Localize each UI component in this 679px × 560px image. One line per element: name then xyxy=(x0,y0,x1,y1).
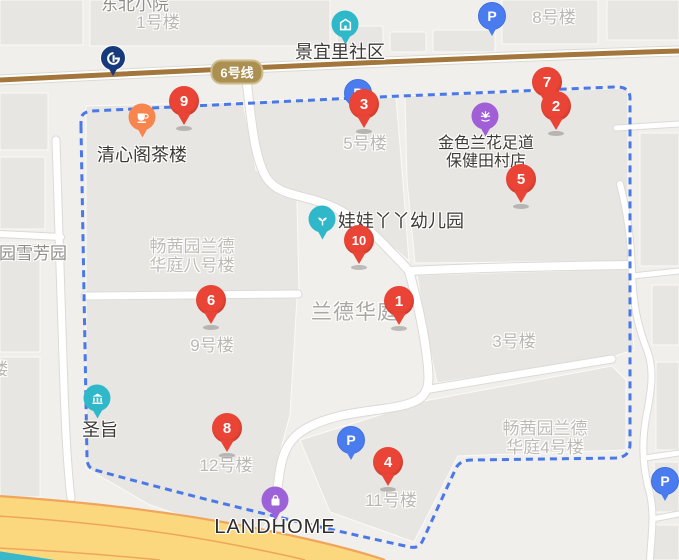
foot-massage-icon[interactable] xyxy=(472,103,499,130)
marker-shadow xyxy=(391,326,407,331)
map-marker-3[interactable]: 3 xyxy=(349,89,379,119)
marker-shadow xyxy=(351,265,367,270)
marker-shadow xyxy=(219,453,235,458)
parking-pin-east[interactable]: P xyxy=(651,467,679,495)
building-label-3: 3号楼 xyxy=(492,327,535,352)
map-marker-4[interactable]: 4 xyxy=(373,447,403,477)
parking-letter: P xyxy=(487,8,496,24)
map-canvas[interactable] xyxy=(0,0,679,560)
bank-glyph xyxy=(90,391,104,405)
teahouse-icon[interactable] xyxy=(129,104,156,131)
poi-label-bank[interactable]: 圣旨 xyxy=(82,416,118,442)
marker-shadow xyxy=(356,129,372,134)
marker-number: 3 xyxy=(360,96,368,113)
map-marker-6[interactable]: 6 xyxy=(196,285,226,315)
map-marker-1[interactable]: 1 xyxy=(384,286,414,316)
subway-logo-icon xyxy=(107,52,120,65)
area-label-yuanxuefangyuan: 园雪芳园 xyxy=(0,239,67,264)
marker-number: 6 xyxy=(207,292,215,309)
poi-label-line: 金色兰花足道 xyxy=(438,135,534,153)
map-marker-2[interactable]: 2 xyxy=(541,91,571,121)
marker-shadow xyxy=(380,487,396,492)
subway-station-icon[interactable] xyxy=(100,45,126,71)
poi-label-teahouse[interactable]: 清心阁茶楼 xyxy=(97,141,187,167)
parking-letter: P xyxy=(346,432,355,448)
area-label-line: 华庭八号楼 xyxy=(150,256,235,275)
marker-number: 1 xyxy=(395,293,403,310)
area-label-line: 畅茜园兰德 xyxy=(503,419,588,438)
parking-pin-south[interactable]: P xyxy=(337,426,365,454)
mall-icon[interactable] xyxy=(262,487,289,514)
marker-number: 9 xyxy=(180,93,188,110)
community-icon[interactable] xyxy=(332,11,359,38)
marker-number: 2 xyxy=(552,98,560,115)
marker-number: 5 xyxy=(517,171,525,188)
marker-number: 4 xyxy=(384,454,392,471)
map-marker-9[interactable]: 9 xyxy=(169,86,199,116)
building-label-9: 9号楼 xyxy=(190,331,233,356)
marker-shadow xyxy=(176,126,192,131)
area-label-line: 畅茜园兰德 xyxy=(150,237,235,256)
map-marker-8[interactable]: 8 xyxy=(212,413,242,443)
kindergarten-icon[interactable] xyxy=(309,206,336,233)
marker-number: 8 xyxy=(223,420,231,437)
marker-shadow xyxy=(513,204,529,209)
sprout-glyph xyxy=(315,212,329,226)
building-label-8: 8号楼 xyxy=(532,3,575,28)
marker-number: 10 xyxy=(352,233,366,248)
marker-shadow xyxy=(203,325,219,330)
parking-letter: P xyxy=(660,473,669,489)
map-marker-10[interactable]: 10 xyxy=(344,225,374,255)
area-label-changxiyuan-8: 畅茜园兰德 华庭八号楼 xyxy=(150,237,235,275)
metro-line-badge: 6号线 xyxy=(210,60,263,85)
area-label-line: 华庭4号楼 xyxy=(503,438,588,457)
area-label-changxiyuan-4: 畅茜园兰德 华庭4号楼 xyxy=(503,419,588,457)
map-marker-5[interactable]: 5 xyxy=(506,164,536,194)
building-label-1: 1号楼 xyxy=(136,8,179,33)
marker-shadow xyxy=(548,131,564,136)
area-label-partial-lou: 楼 xyxy=(0,355,8,380)
marker-number: 7 xyxy=(543,74,551,91)
building-glyph xyxy=(338,17,352,31)
teacup-glyph xyxy=(135,110,149,124)
massage-glyph xyxy=(478,109,492,123)
shopping-bag-glyph xyxy=(268,493,282,507)
parking-pin-north[interactable]: P xyxy=(478,2,506,30)
bank-icon[interactable] xyxy=(84,385,111,412)
